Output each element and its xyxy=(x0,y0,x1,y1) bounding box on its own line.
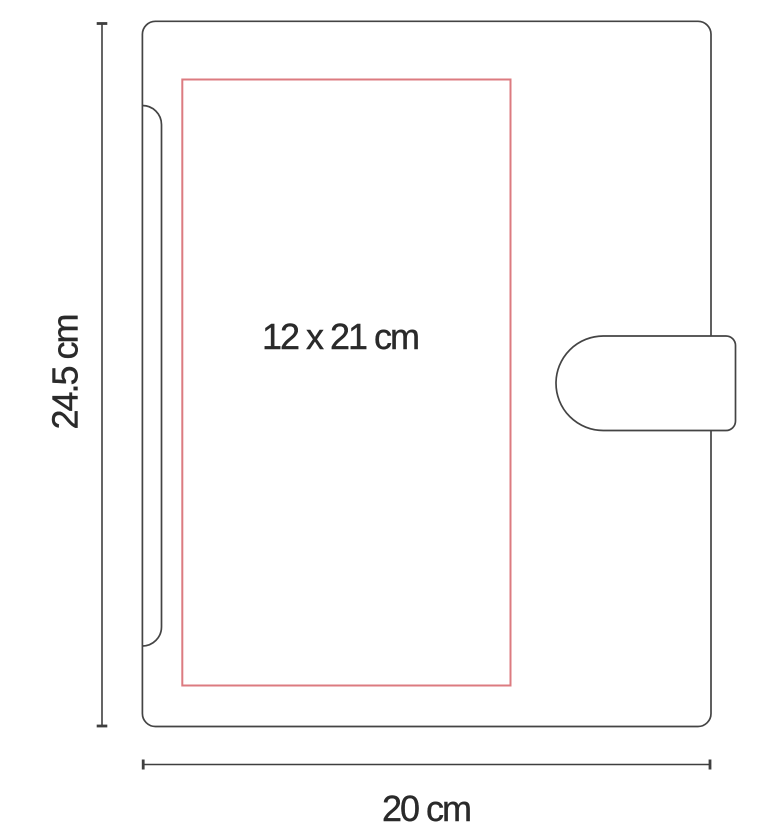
svg-text:12 x 21 cm: 12 x 21 cm xyxy=(262,316,418,357)
svg-text:20 cm: 20 cm xyxy=(382,788,470,829)
svg-text:24.5 cm: 24.5 cm xyxy=(45,315,86,429)
